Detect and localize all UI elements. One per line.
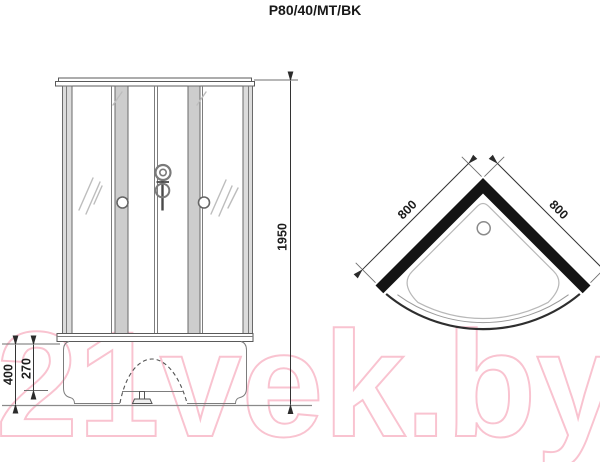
product-dimension-diagram: 21vek.by P80/40/MT/BK [0,0,600,462]
dim-tray-label: 270 [20,358,34,379]
product-title: P80/40/MT/BK [269,2,362,18]
door-knob-right [199,197,210,208]
tray-rim-band [57,334,253,342]
diagram-canvas: 21vek.by P80/40/MT/BK [0,0,600,462]
door-stile-left [115,86,128,334]
door-knob-left [117,197,128,208]
shower-control-ring-inner [160,169,166,175]
dim-side-right-label: 800 [546,197,571,222]
frame-left [63,86,73,334]
glass-hatches [79,92,238,216]
frame-right [243,86,253,334]
dim-side-left-label: 800 [395,197,420,222]
cornice-top [59,78,252,82]
dim-base-label: 400 [2,364,16,385]
cornice [56,82,255,87]
door-stile-right [188,86,200,334]
dim-height-label: 1950 [276,223,290,251]
watermark-text: 21vek.by [0,300,600,462]
